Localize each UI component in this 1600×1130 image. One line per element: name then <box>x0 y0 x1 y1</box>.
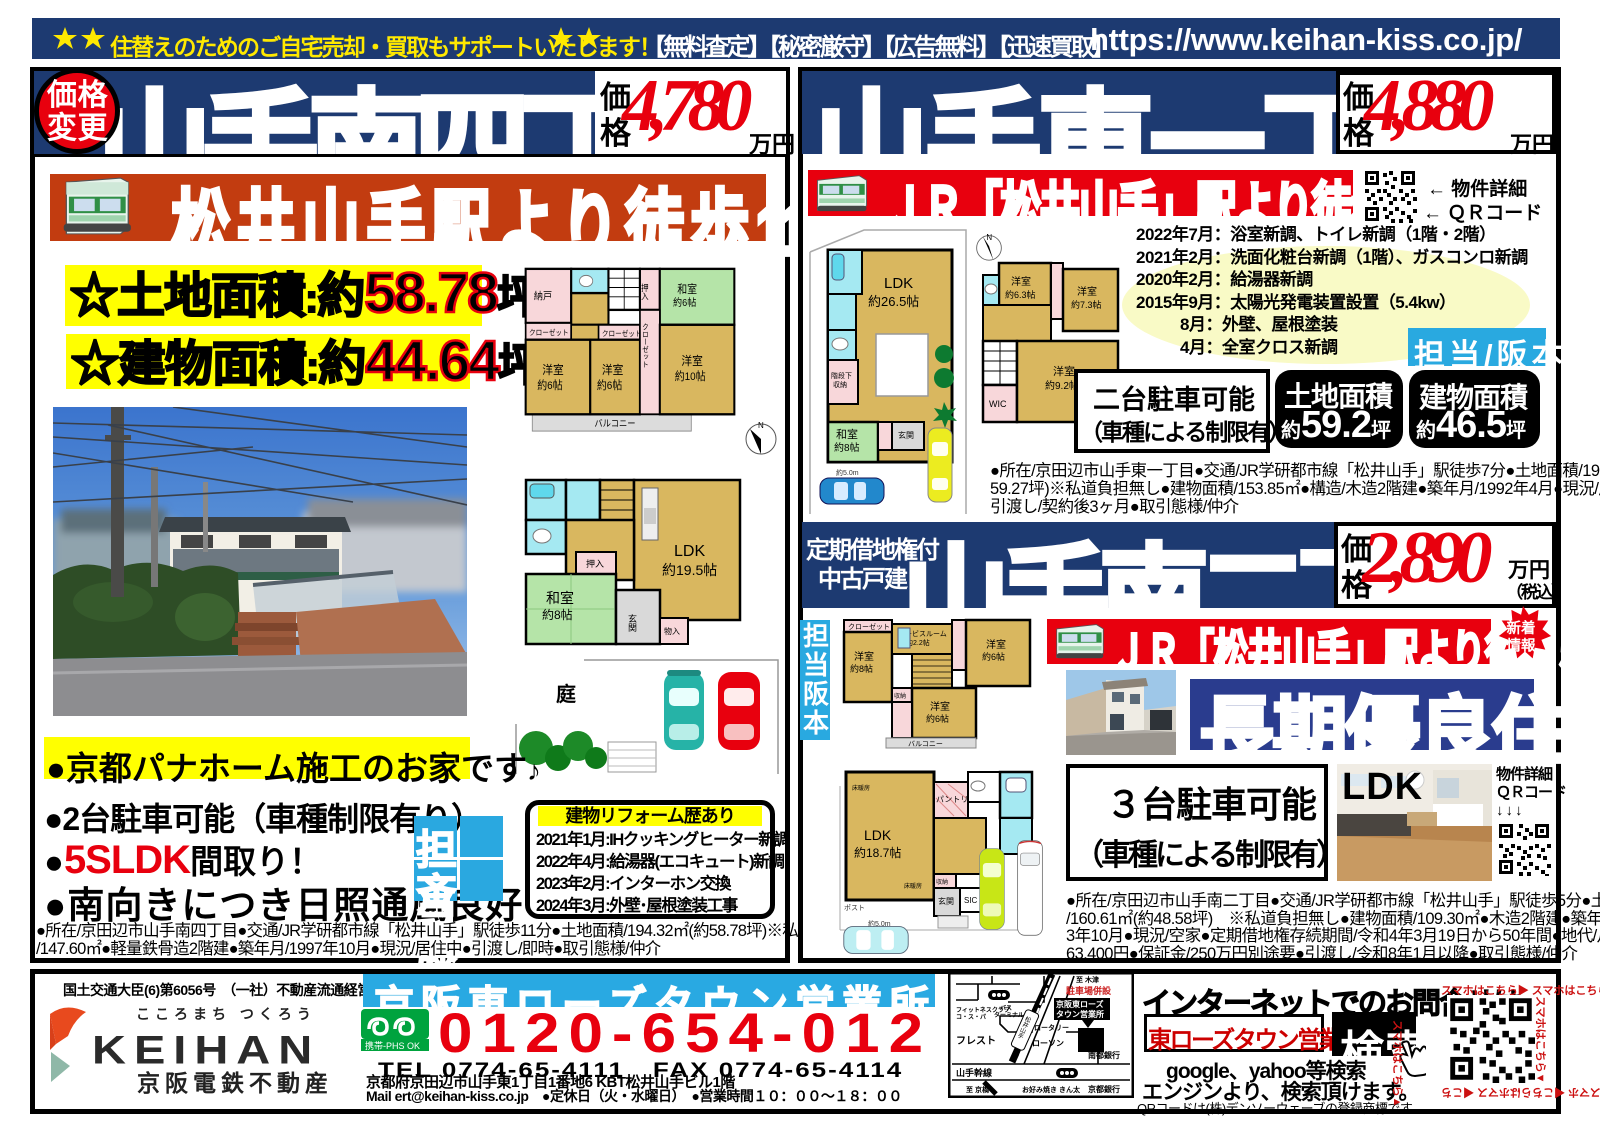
svg-text:洋室: 洋室 <box>1077 285 1097 298</box>
svg-text:約8帖: 約8帖 <box>834 441 860 454</box>
svg-text:床暖房: 床暖房 <box>852 784 870 792</box>
svg-text:至 木津: 至 木津 <box>1076 975 1099 984</box>
svg-text:クローゼット: クローゼット <box>529 328 569 338</box>
svg-text:約7.3帖: 約7.3帖 <box>1071 299 1102 310</box>
svg-text:洋室: 洋室 <box>854 650 874 663</box>
svg-text:クローゼット: クローゼット <box>602 329 642 339</box>
svg-text:ターミナル: ターミナル <box>994 1011 1024 1019</box>
svg-text:クローゼット: クローゼット <box>848 622 890 631</box>
svg-text:新着: 新着 <box>1507 619 1536 637</box>
svg-text:約6帖: 約6帖 <box>926 713 949 724</box>
svg-text:約26.5帖: 約26.5帖 <box>868 294 919 309</box>
svg-text:洋室: 洋室 <box>681 353 703 368</box>
svg-text:ロータリー: ロータリー <box>1034 1023 1069 1032</box>
svg-text:洋室: 洋室 <box>930 700 950 713</box>
svg-text:駐車場併設: 駐車場併設 <box>1066 985 1112 996</box>
svg-text:コ・ス・パ: コ・ス・パ <box>956 1013 986 1021</box>
svg-text:携帯-PHS OK: 携帯-PHS OK <box>365 1040 420 1051</box>
svg-text:納戸: 納戸 <box>534 289 552 303</box>
svg-text:LDK: LDK <box>884 275 913 292</box>
svg-text:バス: バス <box>1000 1004 1012 1012</box>
svg-text:収納: 収納 <box>936 878 948 886</box>
svg-text:約19.5帖: 約19.5帖 <box>662 562 717 578</box>
svg-text:ポスト: ポスト <box>844 904 865 912</box>
svg-text:京都銀行: 京都銀行 <box>1088 1084 1120 1094</box>
svg-text:玄関: 玄関 <box>898 430 914 440</box>
svg-text:和室: 和室 <box>677 283 697 297</box>
svg-text:洋室: 洋室 <box>1053 364 1075 378</box>
svg-text:タウン営業所: タウン営業所 <box>1056 1009 1104 1019</box>
svg-text:約5.0m: 約5.0m <box>836 468 859 477</box>
svg-text:情報: 情報 <box>1507 637 1537 655</box>
svg-text:京阪東ローズ: 京阪東ローズ <box>1056 999 1104 1009</box>
svg-text:和室: 和室 <box>546 590 574 606</box>
svg-text:N: N <box>758 421 764 430</box>
svg-text:お好み焼き きん太: お好み焼き きん太 <box>1022 1085 1081 1094</box>
svg-text:約8帖: 約8帖 <box>850 663 873 674</box>
svg-text:フレスト: フレスト <box>956 1035 996 1047</box>
svg-text:クローゼット: クローゼット <box>642 323 649 368</box>
svg-text:LDK: LDK <box>864 827 892 843</box>
svg-text:収納: 収納 <box>894 692 906 700</box>
svg-text:山手幹線: 山手幹線 <box>956 1067 992 1078</box>
svg-text:洋室: 洋室 <box>986 638 1006 651</box>
svg-text:押入: 押入 <box>641 283 649 301</box>
svg-text:洋室: 洋室 <box>542 363 564 378</box>
svg-text:物入: 物入 <box>664 626 680 636</box>
svg-text:玄関: 玄関 <box>938 896 954 906</box>
svg-text:約10帖: 約10帖 <box>675 369 706 383</box>
svg-text:WIC: WIC <box>989 399 1007 409</box>
svg-text:バルコニー: バルコニー <box>594 418 635 429</box>
svg-text:LDK: LDK <box>674 543 705 560</box>
svg-text:床暖房: 床暖房 <box>904 882 922 890</box>
svg-text:玄関: 玄関 <box>627 613 637 633</box>
svg-text:約6.3帖: 約6.3帖 <box>1005 289 1036 300</box>
svg-text:和室: 和室 <box>836 427 858 441</box>
svg-text:N: N <box>986 233 992 242</box>
svg-text:押入: 押入 <box>586 558 604 569</box>
svg-text:約6帖: 約6帖 <box>673 296 697 310</box>
svg-text:約6帖: 約6帖 <box>597 379 623 393</box>
svg-text:約8帖: 約8帖 <box>542 607 573 622</box>
svg-text:ローソン: ローソン <box>1032 1039 1064 1048</box>
svg-text:洋室: 洋室 <box>602 363 624 378</box>
svg-text:洋室: 洋室 <box>1011 275 1031 288</box>
svg-text:約18.7帖: 約18.7帖 <box>854 845 901 860</box>
svg-text:階段下: 階段下 <box>831 371 852 380</box>
svg-text:収納: 収納 <box>833 380 847 389</box>
svg-text:約6帖: 約6帖 <box>537 379 563 393</box>
svg-text:約6帖: 約6帖 <box>982 651 1005 662</box>
svg-text:バルコニー: バルコニー <box>908 740 943 748</box>
